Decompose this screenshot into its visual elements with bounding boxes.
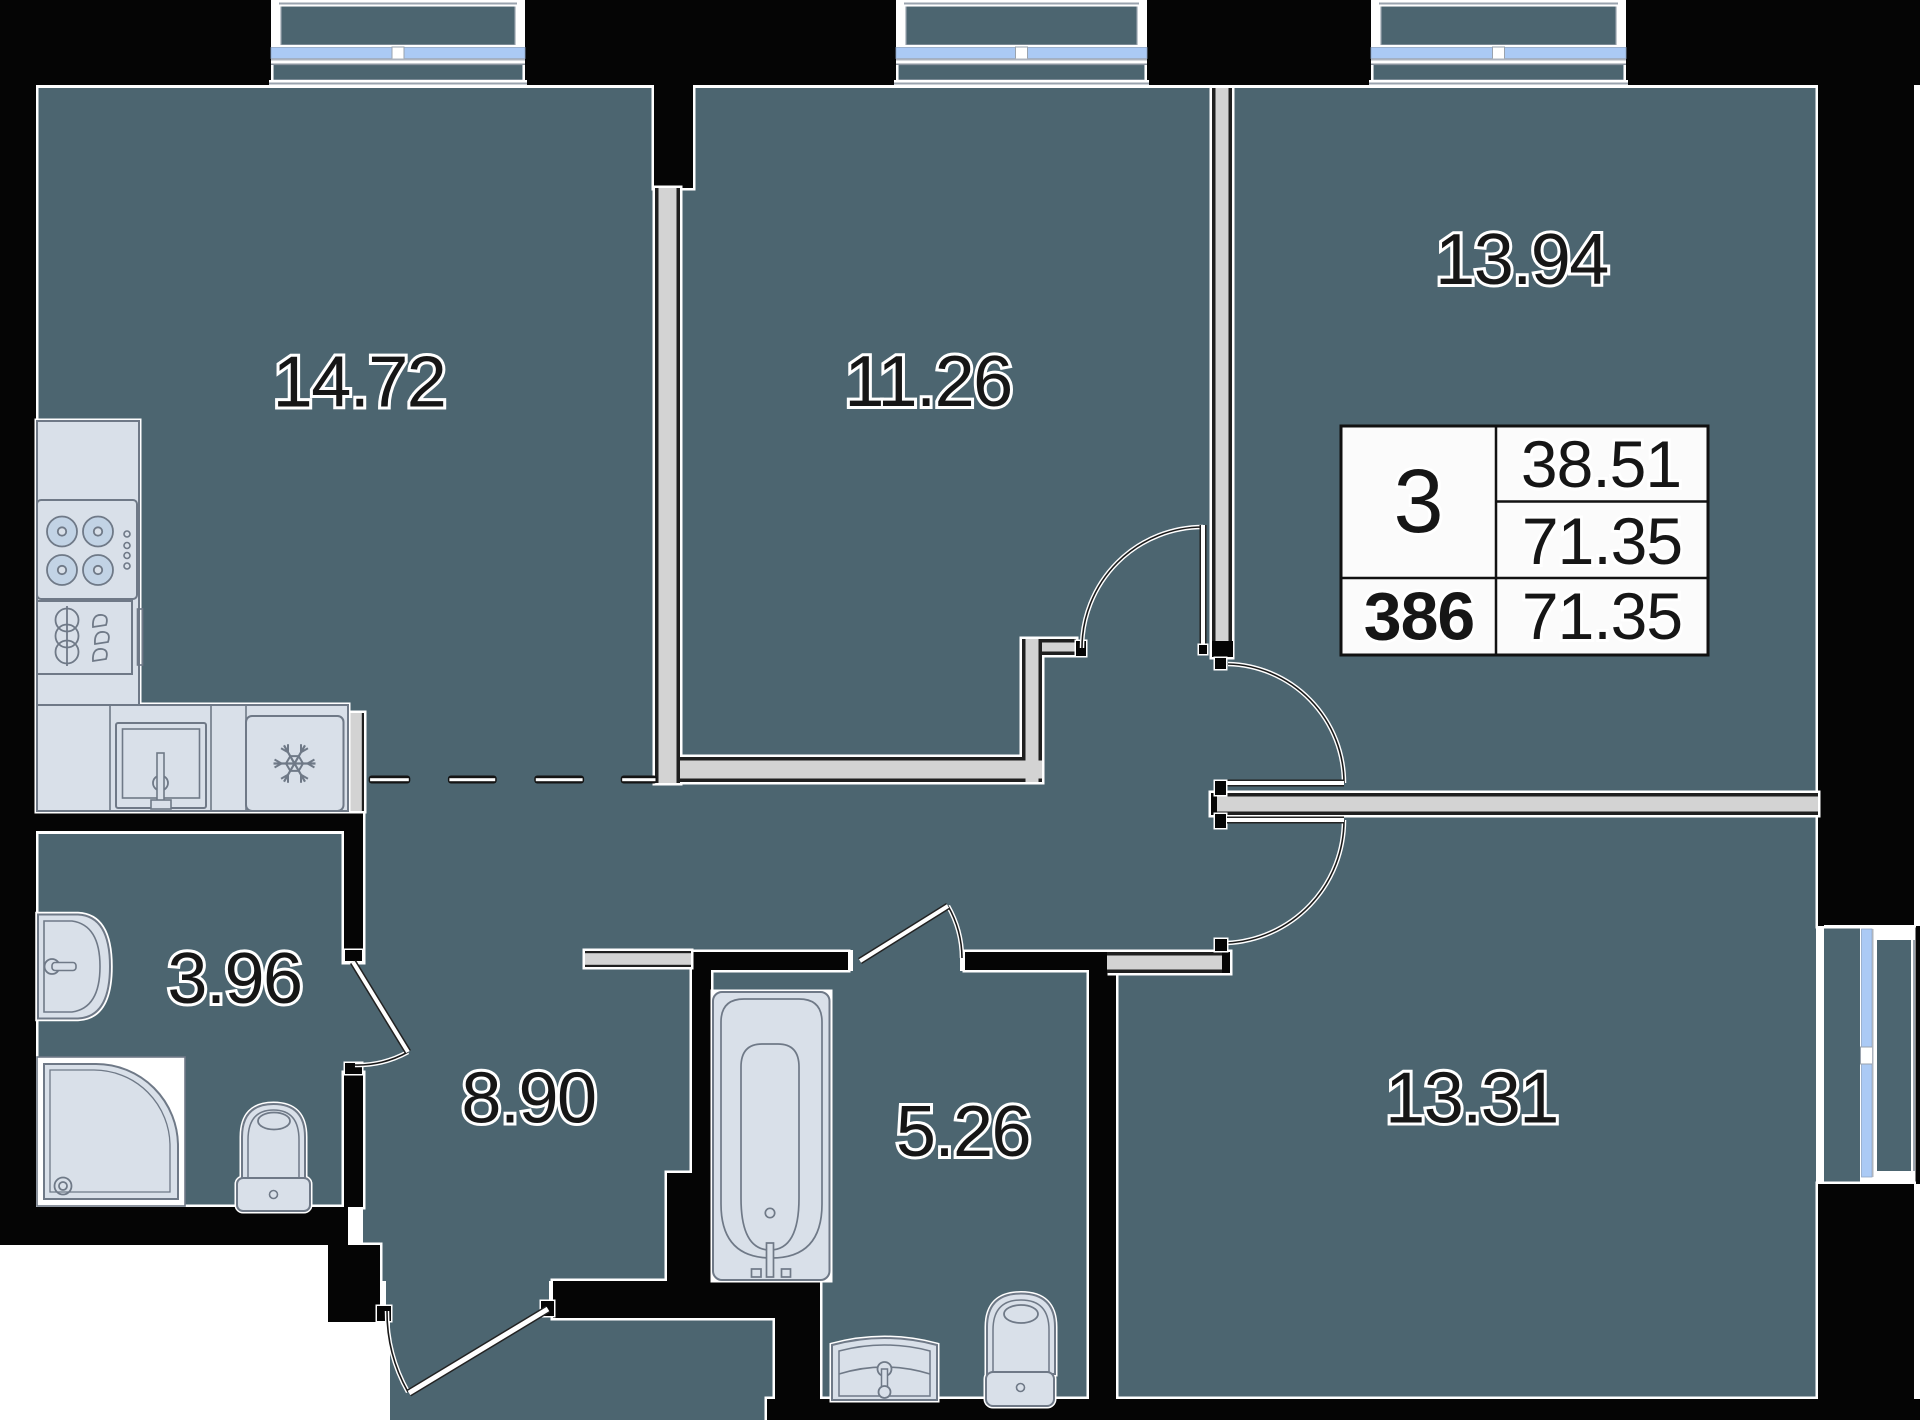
svg-text:11.26: 11.26 (844, 342, 1011, 422)
svg-text:13.31: 13.31 (1385, 1059, 1558, 1139)
svg-text:8.90: 8.90 (461, 1059, 595, 1139)
svg-text:13.94: 13.94 (1435, 220, 1608, 300)
svg-text:5.26: 5.26 (896, 1092, 1030, 1172)
svg-text:71.35: 71.35 (1522, 504, 1682, 578)
svg-text:386: 386 (1364, 579, 1474, 655)
svg-text:14.72: 14.72 (273, 343, 446, 423)
svg-text:71.35: 71.35 (1522, 579, 1682, 653)
svg-text:3.96: 3.96 (167, 939, 301, 1019)
svg-text:38.51: 38.51 (1521, 427, 1681, 501)
svg-text:3: 3 (1393, 452, 1443, 552)
